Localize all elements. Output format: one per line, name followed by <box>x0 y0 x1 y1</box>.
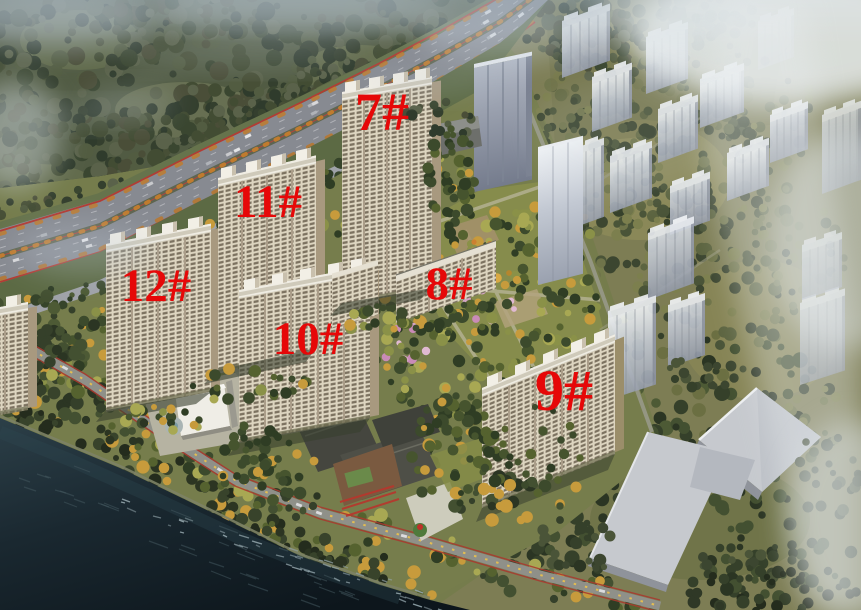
svg-text:7#: 7# <box>355 82 409 142</box>
svg-text:9#: 9# <box>535 358 593 423</box>
svg-text:10#: 10# <box>273 313 344 365</box>
svg-text:11#: 11# <box>234 176 302 228</box>
svg-text:12#: 12# <box>121 260 192 312</box>
svg-text:8#: 8# <box>426 258 473 310</box>
